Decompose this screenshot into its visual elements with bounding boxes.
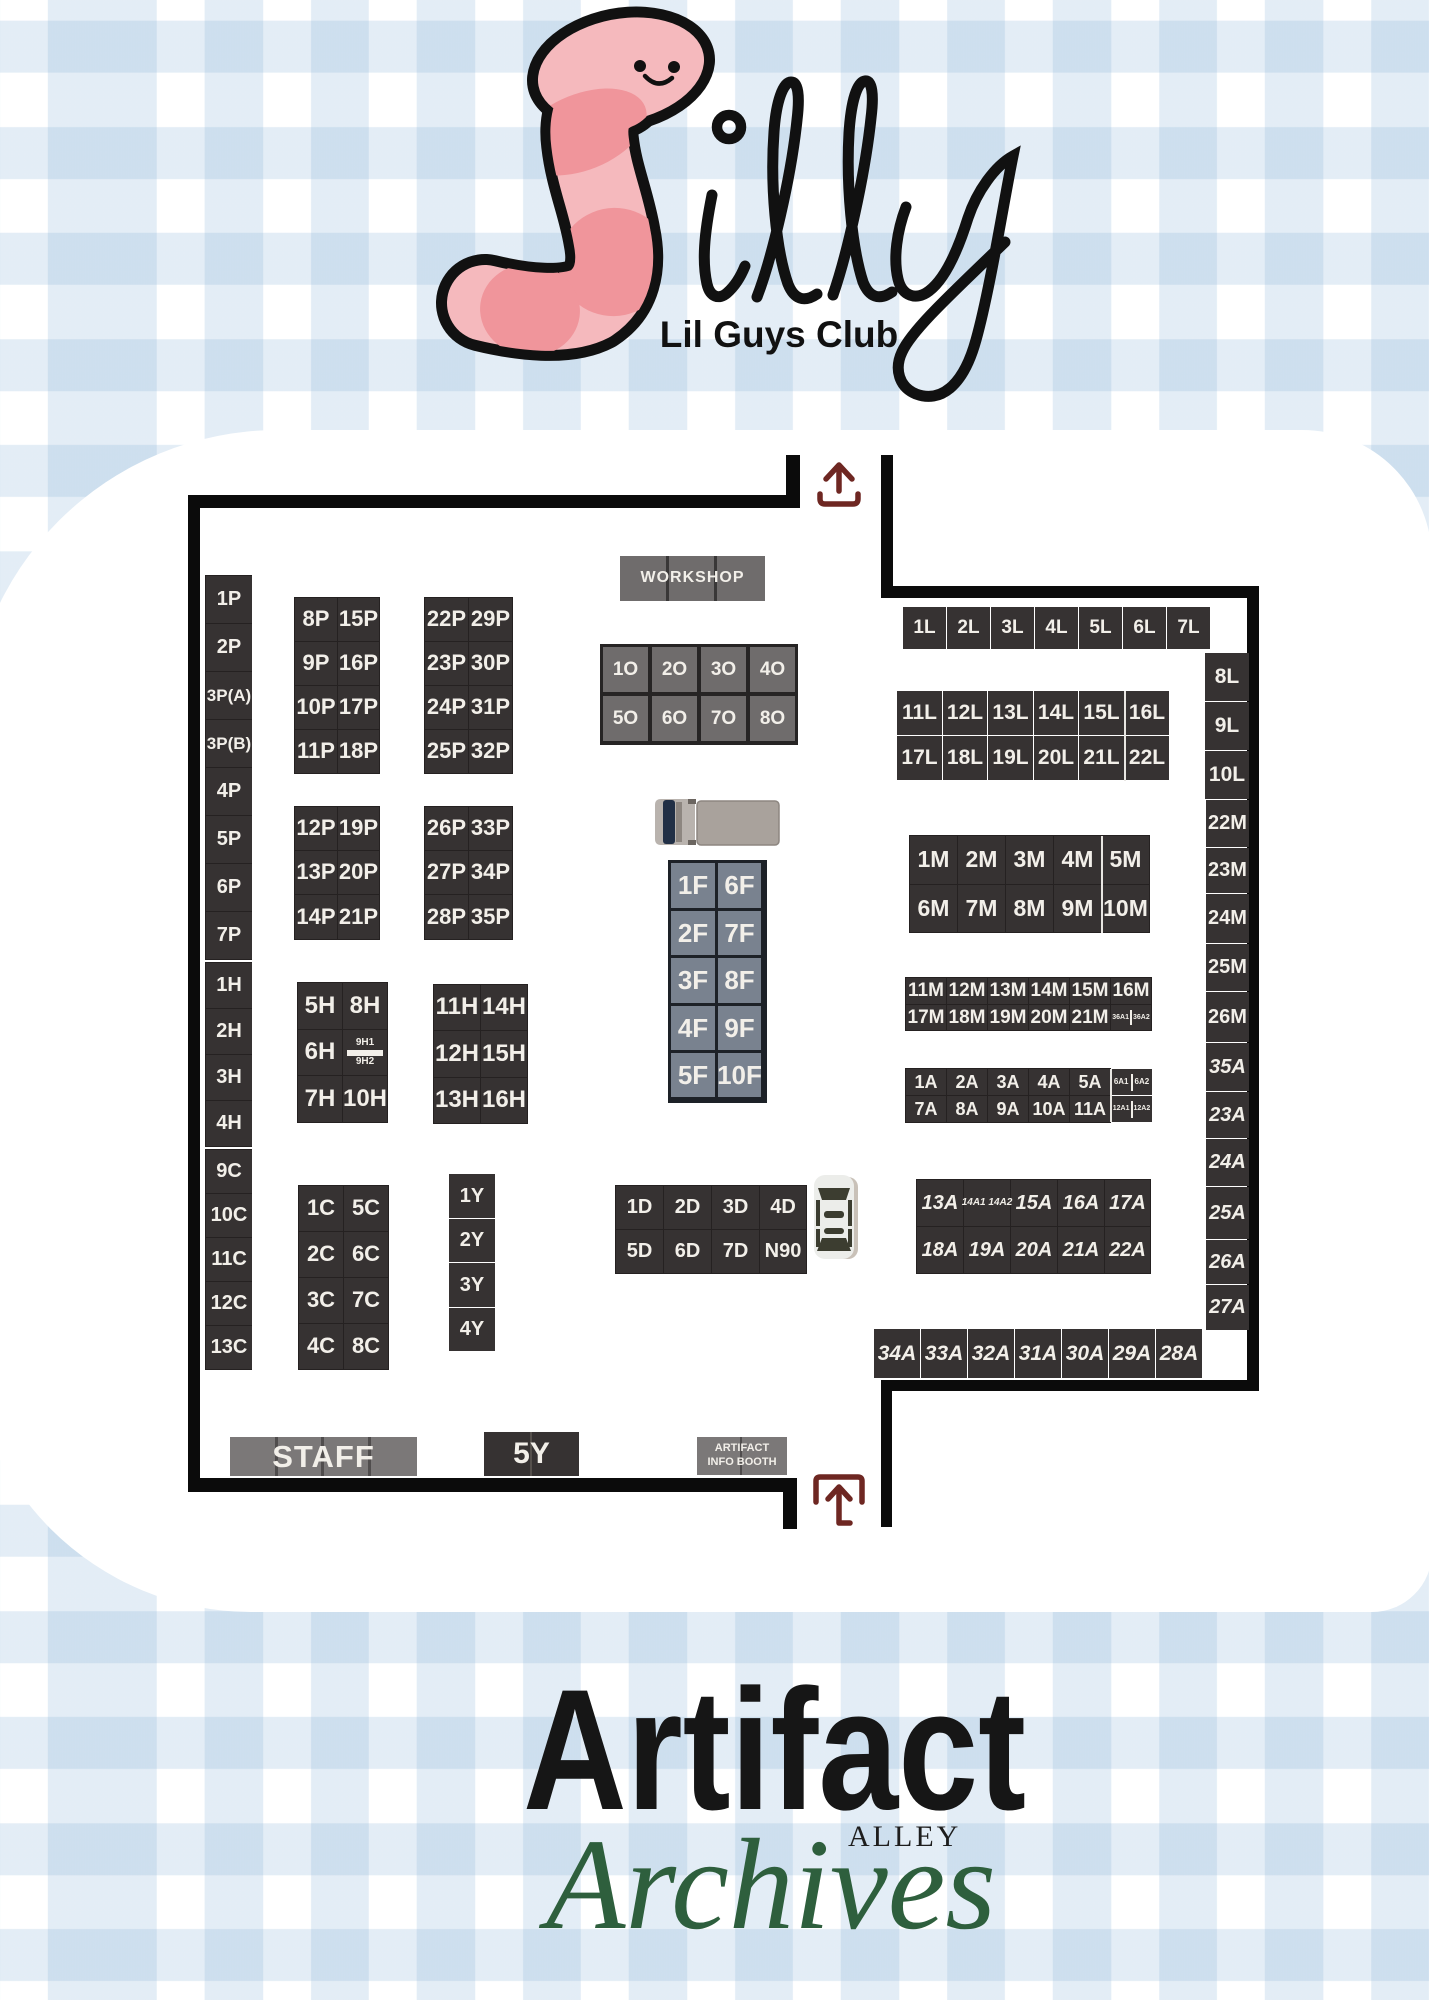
svg-text:Artifact: Artifact xyxy=(523,1654,1026,1836)
svg-text:Lil Guys Club: Lil Guys Club xyxy=(660,314,898,355)
